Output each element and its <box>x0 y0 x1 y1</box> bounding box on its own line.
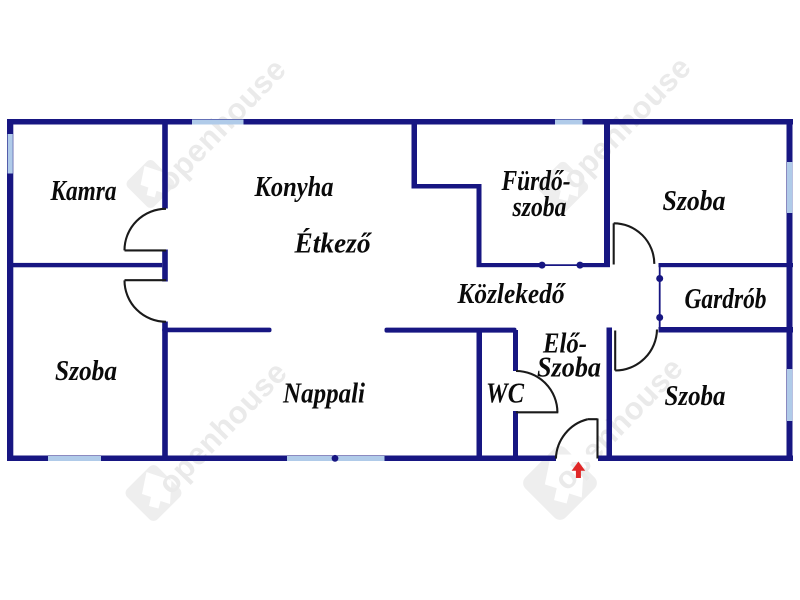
svg-text:WC: WC <box>486 379 524 410</box>
svg-text:Szoba: Szoba <box>665 381 726 412</box>
svg-text:Gardrób: Gardrób <box>685 284 767 315</box>
svg-text:Közlekedő: Közlekedő <box>457 279 567 310</box>
svg-text:Konyha: Konyha <box>254 172 334 203</box>
svg-text:Nappali: Nappali <box>282 379 365 410</box>
svg-text:Szoba: Szoba <box>55 356 117 387</box>
svg-text:Szoba: Szoba <box>537 353 601 384</box>
svg-text:Szoba: Szoba <box>663 186 726 217</box>
svg-text:Kamra: Kamra <box>50 176 117 207</box>
svg-text:Étkező: Étkező <box>294 229 373 260</box>
svg-text:szoba: szoba <box>512 192 567 223</box>
